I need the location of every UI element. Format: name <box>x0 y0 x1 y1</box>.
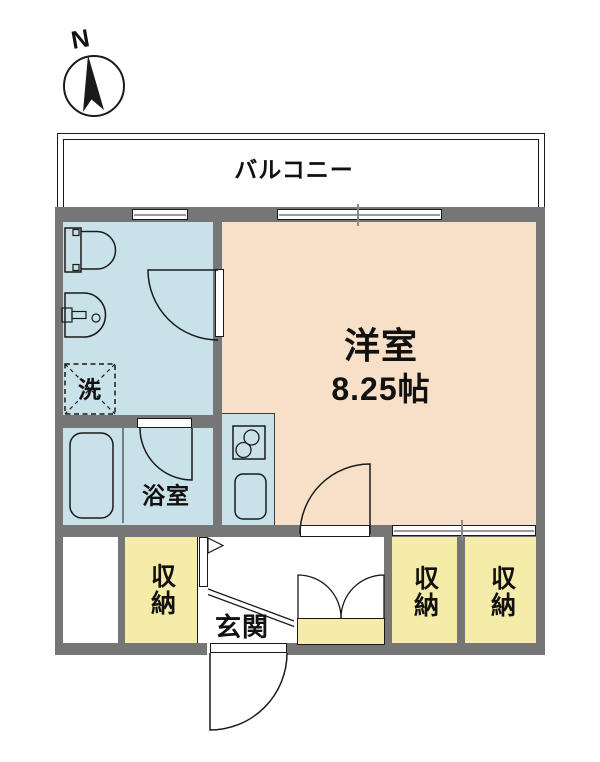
wall-left <box>55 207 63 655</box>
balcony-label: バルコニー <box>234 159 354 182</box>
entrance-label: 玄関 <box>215 614 269 640</box>
window-sash <box>279 214 440 216</box>
bathroom-door-panel <box>137 418 192 428</box>
front-door-swing <box>210 653 287 730</box>
wall-hall-storage2 <box>384 537 392 643</box>
bathroom <box>63 428 213 525</box>
front-door-panel <box>210 643 287 653</box>
floor-plan: N バルコニー 洋室 8.25帖 浴室 洗 玄関 収納 収納 収納 <box>0 0 600 762</box>
kitchen-unit <box>222 413 275 525</box>
western-room-door-opening <box>300 525 370 537</box>
western-room-size-label: 8.25帖 <box>331 373 430 405</box>
hall-closet <box>297 618 385 645</box>
bathroom-label: 浴室 <box>142 485 190 508</box>
compass-north-label: N <box>69 26 92 54</box>
window-center-mark <box>357 204 359 226</box>
washer-label: 洗 <box>78 379 102 402</box>
wall-washroom-west <box>213 222 222 525</box>
wall-storage2-storage3 <box>457 537 465 643</box>
closet-sliding-doors <box>392 525 536 536</box>
wall-right <box>536 207 545 655</box>
wall-utility-storage1 <box>118 537 125 643</box>
sliding-door-center-mark <box>461 520 463 541</box>
sliding-door-sash <box>394 530 534 532</box>
balcony-window-small <box>132 209 188 220</box>
western-room-label: 洋室 <box>344 328 418 364</box>
window-sash <box>134 214 186 216</box>
balcony-window-large <box>277 209 442 220</box>
storage-3-label: 収納 <box>489 565 514 619</box>
storage1-door-panel <box>199 537 208 587</box>
washroom-door-panel <box>215 269 224 337</box>
compass-icon <box>64 55 124 116</box>
storage-1-label: 収納 <box>149 563 174 617</box>
storage-2-label: 収納 <box>412 565 437 619</box>
utility-box <box>63 537 118 643</box>
